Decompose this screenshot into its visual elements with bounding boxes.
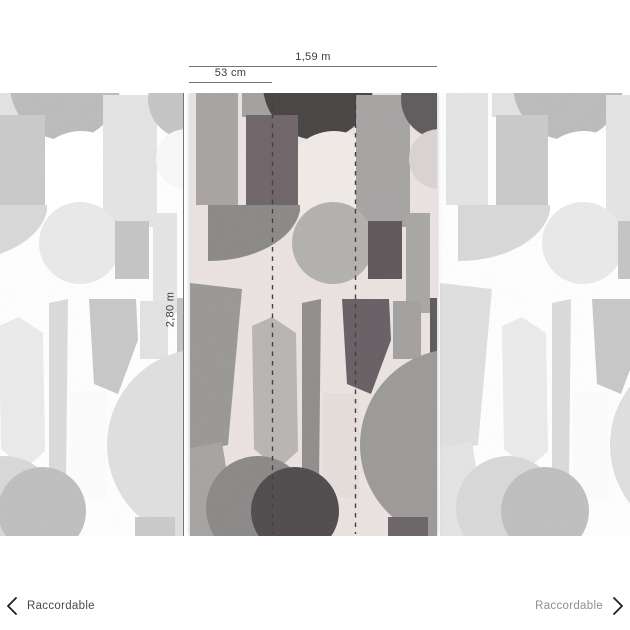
raccordable-prev-label: Raccordable [27,596,95,616]
chevron-right-icon [612,596,624,616]
wallpaper-repeat-right [440,93,630,536]
wallpaper-preview [0,93,630,536]
raccordable-prev[interactable]: Raccordable [6,596,95,616]
width-measurement: 1,59 m [189,51,437,67]
strip-measurement: 53 cm [189,67,272,83]
height-measurement-label: 2,80 m [165,279,178,341]
height-measurement-line [183,93,184,536]
wallpaper-dimension-view: 1,59 m 53 cm 2,80 m Raccordable Raccorda… [0,0,630,630]
chevron-left-icon [6,596,18,616]
panel-gap-left [184,93,190,536]
strip-measurement-line [189,82,272,83]
raccordable-next[interactable]: Raccordable [535,596,624,616]
panel-gap-right [437,93,440,536]
width-measurement-label: 1,59 m [189,51,437,64]
raccordable-next-label: Raccordable [535,596,603,616]
strip-measurement-label: 53 cm [189,67,272,80]
